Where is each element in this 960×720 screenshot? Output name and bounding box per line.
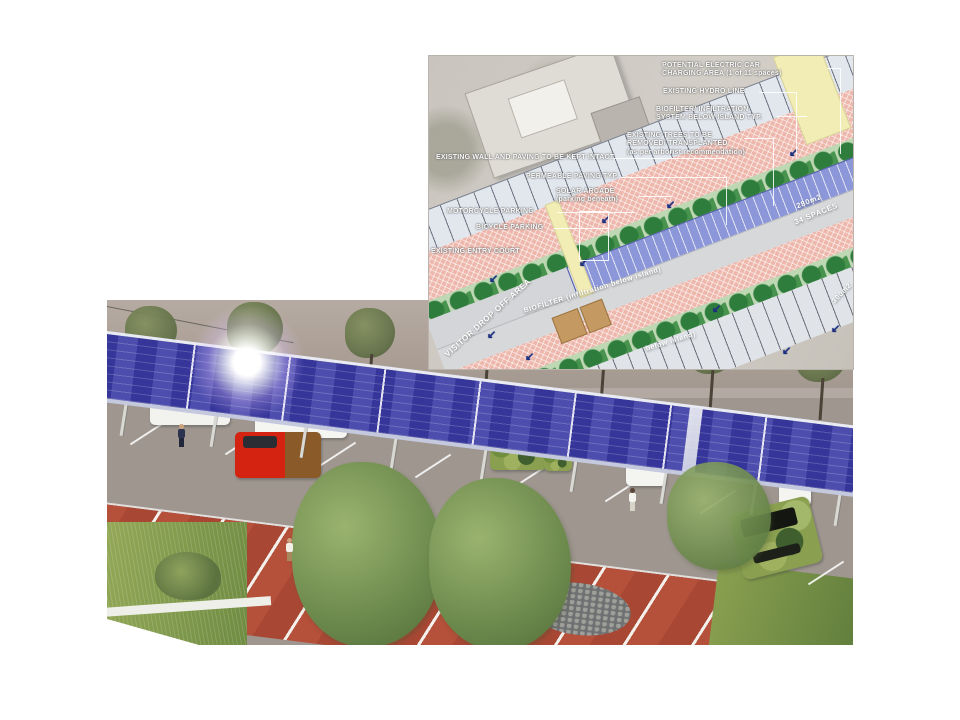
leader-line — [607, 158, 725, 159]
flow-arrow-icon: ↙ — [831, 322, 840, 335]
annotation-existing-trees: EXISTING TREES TO BE REMOVED/ TRANSPLANT… — [627, 132, 745, 157]
annotation-ev-charging: POTENTIAL ELECTRIC CAR CHARGING AREA (1 … — [662, 62, 781, 79]
shrub — [155, 552, 221, 600]
annotation-permeable-paving: PERMEABLE PAVING TYP. — [526, 173, 619, 181]
leader-line — [759, 92, 797, 93]
flow-arrow-icon: ↙ — [489, 272, 498, 285]
pedestrian — [285, 538, 294, 562]
flow-arrow-icon: ↙ — [666, 198, 675, 211]
flow-arrow-icon: ↙ — [525, 350, 534, 363]
annotation-hydro-line: EXISTING HYDRO LINE — [663, 88, 745, 96]
car-red — [235, 432, 321, 478]
annotation-bicycle-parking: BICYCLE PARKING — [476, 224, 543, 232]
flow-arrow-icon: ↙ — [712, 302, 721, 315]
slide-canvas: { "site_plan": { "annotations": [ {"id":… — [0, 0, 960, 720]
tree-foreground — [292, 462, 442, 645]
leader-line — [744, 138, 774, 139]
leader-line — [639, 196, 671, 197]
callout-box — [579, 211, 609, 261]
grass-strip-right — [708, 562, 853, 645]
pedestrian — [177, 424, 186, 448]
annotation-entry-court: EXISTING ENTRY COURT — [431, 248, 520, 256]
tree-foreground — [429, 478, 571, 645]
annotation-motorcycle-parking: MOTORCYCLE PARKING — [447, 208, 534, 216]
tree-foreground — [667, 462, 771, 570]
annotation-biofilter-system: BIOFILTER/ INFILTRATION SYSTEM BELOW ISL… — [656, 106, 762, 123]
sun-glare — [187, 302, 307, 422]
building-roof — [508, 79, 578, 138]
parking-line — [415, 454, 451, 479]
leader-line — [827, 68, 841, 69]
pedestrian — [628, 488, 637, 512]
leader-line — [726, 177, 727, 225]
annotation-existing-wall: EXISTING WALL AND PAVING TO BE KEPT INTA… — [436, 154, 614, 162]
leader-line — [777, 116, 807, 117]
annotation-solar-arcade: SOLAR ARCADE (parking beneath) — [556, 188, 618, 205]
leader-line — [773, 138, 774, 206]
leader-line — [621, 177, 727, 178]
leader-line — [840, 68, 841, 154]
site-plan: ↙ ↙ ↙ ↙ ↙ ↙ ↙ ↙ ↙ ↙ POTENTIAL ELECTRIC C… — [428, 55, 854, 370]
flow-arrow-icon: ↙ — [782, 344, 791, 357]
flow-arrow-icon: ↙ — [487, 328, 496, 341]
leader-line — [796, 92, 797, 158]
